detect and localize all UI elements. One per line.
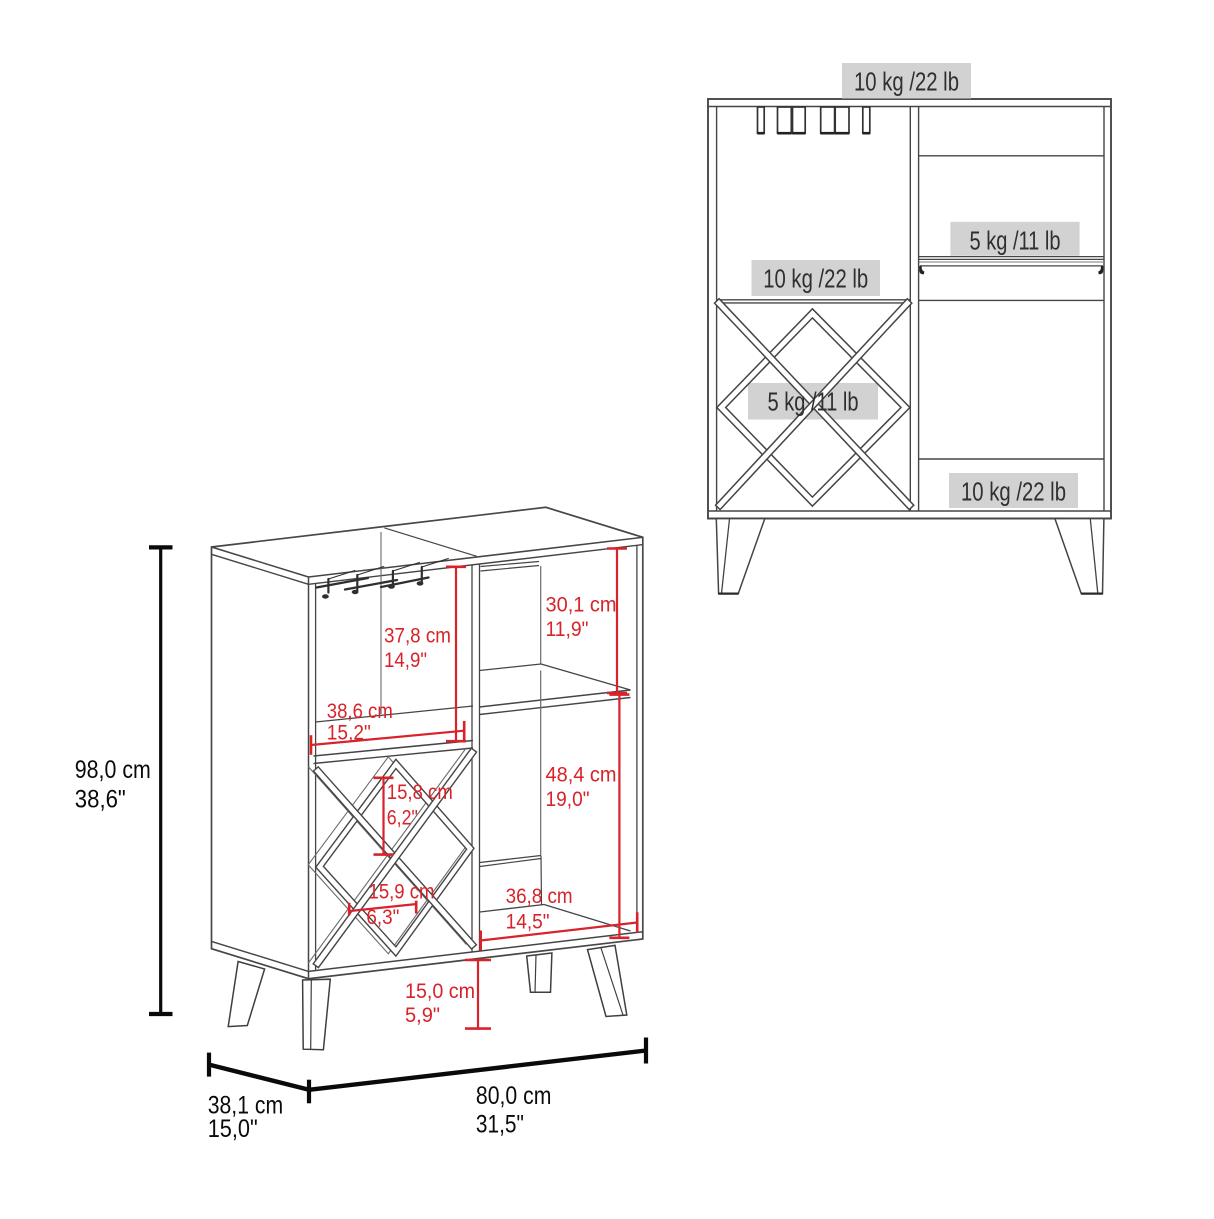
svg-text:38,6 cm: 38,6 cm <box>327 700 393 723</box>
svg-text:14,9": 14,9" <box>384 649 427 672</box>
svg-text:10 kg /22 lb: 10 kg /22 lb <box>763 266 868 294</box>
svg-text:14,5": 14,5" <box>506 911 550 934</box>
svg-text:10 kg /22 lb: 10 kg /22 lb <box>854 69 959 97</box>
svg-text:37,8 cm: 37,8 cm <box>384 625 451 648</box>
svg-text:15,8 cm: 15,8 cm <box>387 781 453 804</box>
svg-text:15,2": 15,2" <box>327 721 371 744</box>
svg-text:38,6": 38,6" <box>75 787 126 814</box>
svg-text:30,1 cm: 30,1 cm <box>546 593 617 616</box>
svg-text:5 kg /11 lb: 5 kg /11 lb <box>768 389 859 417</box>
svg-text:10 kg /22 lb: 10 kg /22 lb <box>961 479 1066 507</box>
svg-text:48,4 cm: 48,4 cm <box>546 764 617 787</box>
svg-text:36,8 cm: 36,8 cm <box>506 885 573 908</box>
svg-text:15,0": 15,0" <box>208 1116 258 1143</box>
svg-text:5 kg /11 lb: 5 kg /11 lb <box>970 227 1061 255</box>
svg-text:31,5": 31,5" <box>476 1111 524 1138</box>
svg-text:5,9": 5,9" <box>405 1004 440 1027</box>
svg-text:80,0 cm: 80,0 cm <box>476 1083 552 1110</box>
svg-text:6,3": 6,3" <box>366 906 399 929</box>
svg-text:15,0 cm: 15,0 cm <box>405 980 475 1003</box>
svg-text:6,2": 6,2" <box>387 807 418 830</box>
svg-text:15,9 cm: 15,9 cm <box>369 881 435 904</box>
svg-text:11,9": 11,9" <box>546 618 589 641</box>
svg-text:19,0": 19,0" <box>546 788 590 811</box>
svg-text:98,0 cm: 98,0 cm <box>75 757 151 784</box>
